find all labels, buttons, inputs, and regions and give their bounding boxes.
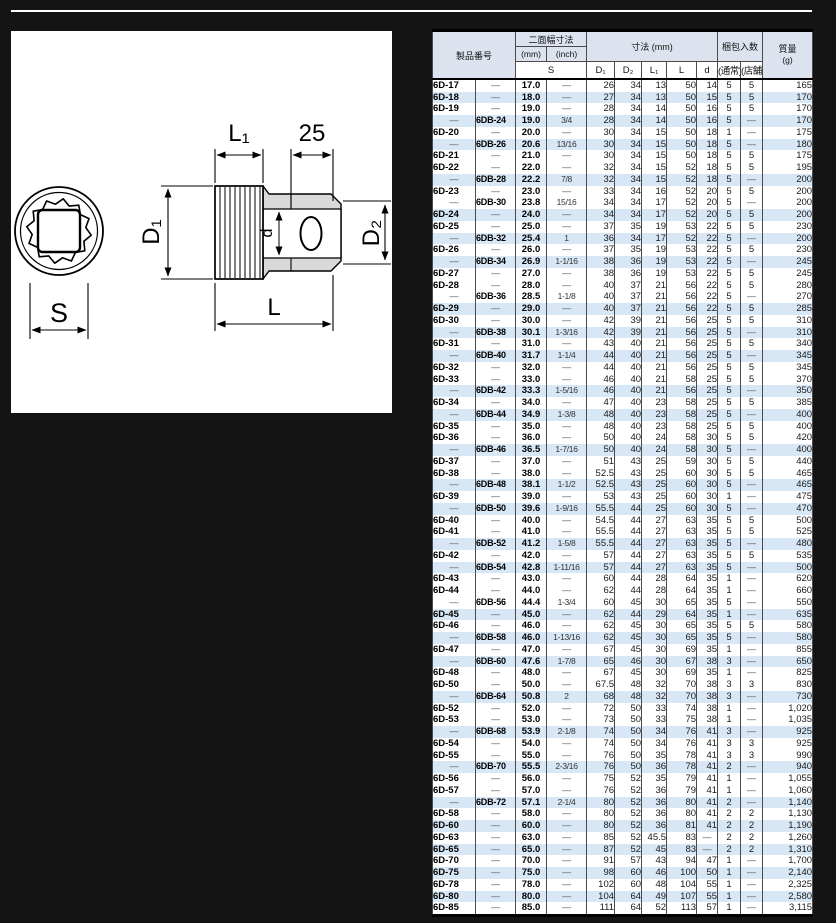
table-cell: 13	[642, 92, 667, 104]
table-cell: 37	[587, 244, 615, 256]
table-cell: 40	[615, 432, 642, 444]
table-cell: 52.5	[587, 479, 615, 491]
table-cell: 75.0	[516, 867, 547, 879]
table-cell: 35	[697, 597, 718, 609]
table-cell: 76	[667, 726, 697, 738]
table-cell: 18	[697, 139, 718, 151]
table-cell: 43	[615, 491, 642, 503]
table-cell: —	[476, 855, 516, 867]
table-cell: 40	[615, 397, 642, 409]
table-cell: —	[476, 867, 516, 879]
table-cell: 40	[615, 374, 642, 386]
dimension-s: S	[30, 283, 88, 339]
table-row: 6D-54—54.0—745034764133925	[433, 738, 813, 750]
table-cell: 5	[718, 221, 741, 233]
table-cell: 5	[718, 209, 741, 221]
table-cell: 41	[697, 820, 718, 832]
table-cell: 52.5	[587, 468, 615, 480]
table-row: 6D-24—24.0—343417522055200	[433, 209, 813, 221]
table-cell: —	[433, 726, 476, 738]
table-cell: 32	[587, 162, 615, 174]
table-cell: 5	[741, 550, 763, 562]
table-cell: 18.0	[516, 92, 547, 104]
table-cell: 3	[741, 679, 763, 691]
table-cell: —	[741, 291, 763, 303]
table-cell: 6D-33	[433, 374, 476, 386]
table-cell: 6DB-44	[476, 409, 516, 421]
table-cell: 35	[697, 667, 718, 679]
table-cell: 6D-46	[433, 620, 476, 632]
table-cell: 48	[587, 421, 615, 433]
table-cell: 40.0	[516, 515, 547, 527]
table-row: 6D-48—48.0—67453069351—825	[433, 667, 813, 679]
table-row: —6DB-6450.8268483270383—730	[433, 691, 813, 703]
table-cell: —	[476, 268, 516, 280]
table-cell: 650	[763, 656, 813, 668]
table-cell: —	[476, 644, 516, 656]
table-cell: 3	[718, 750, 741, 762]
table-cell: 34	[615, 150, 642, 162]
table-cell: 30	[642, 667, 667, 679]
table-cell: 53	[587, 491, 615, 503]
table-cell: 17	[642, 197, 667, 209]
table-cell: 44	[615, 538, 642, 550]
table-cell: —	[547, 221, 587, 233]
table-cell: 15	[642, 174, 667, 186]
table-cell: —	[547, 585, 587, 597]
table-cell: 113	[667, 902, 697, 915]
table-cell: 1	[718, 127, 741, 139]
table-cell: 730	[763, 691, 813, 703]
table-cell: —	[476, 186, 516, 198]
table-cell: 21	[642, 374, 667, 386]
table-cell: 6D-17	[433, 79, 476, 92]
table-cell: 6D-63	[433, 832, 476, 844]
table-cell: 40	[615, 338, 642, 350]
table-cell: 44	[615, 585, 642, 597]
table-cell: 420	[763, 432, 813, 444]
table-cell: —	[741, 350, 763, 362]
table-cell: 620	[763, 573, 813, 585]
table-cell: —	[547, 315, 587, 327]
table-row: 6D-41—41.0—55.54427633555525	[433, 526, 813, 538]
table-cell: 5	[741, 374, 763, 386]
table-cell: 65.0	[516, 844, 547, 856]
table-cell: 35	[697, 573, 718, 585]
table-cell: 34	[642, 726, 667, 738]
table-cell: 80	[587, 808, 615, 820]
table-cell: 24	[642, 432, 667, 444]
table-row: 6D-33—33.0—464021582555370	[433, 374, 813, 386]
table-cell: 48	[615, 691, 642, 703]
table-cell: 6DB-40	[476, 350, 516, 362]
table-cell: 35.0	[516, 421, 547, 433]
table-cell: 6D-37	[433, 456, 476, 468]
table-cell: —	[547, 832, 587, 844]
table-cell: 50	[667, 150, 697, 162]
table-cell: 27	[642, 526, 667, 538]
table-cell: 270	[763, 291, 813, 303]
table-cell: 6D-24	[433, 209, 476, 221]
table-cell: —	[741, 503, 763, 515]
table-cell: —	[547, 844, 587, 856]
table-cell: —	[741, 644, 763, 656]
table-cell: —	[741, 573, 763, 585]
table-cell: 5	[718, 597, 741, 609]
table-cell: —	[433, 409, 476, 421]
table-cell: —	[547, 785, 587, 797]
table-cell: 6D-26	[433, 244, 476, 256]
table-cell: 40	[587, 280, 615, 292]
table-cell: 30	[642, 597, 667, 609]
table-cell: 28	[642, 573, 667, 585]
table-cell: 65	[667, 620, 697, 632]
table-cell: 57	[697, 902, 718, 915]
table-cell: —	[433, 444, 476, 456]
table-cell: —	[547, 456, 587, 468]
table-cell: 535	[763, 550, 813, 562]
table-cell: 230	[763, 244, 813, 256]
table-cell: 635	[763, 609, 813, 621]
table-cell: 1-3/8	[547, 409, 587, 421]
table-cell: 465	[763, 479, 813, 491]
table-cell: 32	[642, 679, 667, 691]
table-cell: —	[741, 609, 763, 621]
table-cell: 42.0	[516, 550, 547, 562]
table-cell: —	[741, 491, 763, 503]
table-cell: 44	[615, 526, 642, 538]
table-cell: 3	[718, 691, 741, 703]
table-cell: 45	[615, 620, 642, 632]
table-cell: 6D-41	[433, 526, 476, 538]
table-cell: 69	[667, 644, 697, 656]
table-cell: 6D-23	[433, 186, 476, 198]
table-cell: 19.0	[516, 115, 547, 127]
table-cell: 60	[615, 879, 642, 891]
table-cell: 74	[587, 738, 615, 750]
table-cell: 22	[697, 291, 718, 303]
table-cell: 56	[667, 327, 697, 339]
table-cell: 475	[763, 491, 813, 503]
table-cell: 52	[667, 162, 697, 174]
table-cell: —	[547, 421, 587, 433]
table-cell: 50	[667, 92, 697, 104]
table-cell: 22	[697, 280, 718, 292]
table-cell: —	[476, 456, 516, 468]
table-cell: 5	[718, 197, 741, 209]
table-cell: —	[433, 174, 476, 186]
table-cell: 990	[763, 750, 813, 762]
table-cell: —	[476, 374, 516, 386]
table-cell: 42	[587, 315, 615, 327]
table-cell: —	[741, 115, 763, 127]
table-cell: 35	[697, 632, 718, 644]
table-cell: 43	[615, 468, 642, 480]
table-cell: 230	[763, 221, 813, 233]
table-cell: —	[741, 327, 763, 339]
table-cell: 62	[587, 609, 615, 621]
table-row: 6D-34—34.0—474023582555385	[433, 397, 813, 409]
table-cell: —	[476, 891, 516, 903]
table-cell: 52	[615, 797, 642, 809]
table-cell: 36	[615, 256, 642, 268]
table-cell: 1-1/4	[547, 350, 587, 362]
table-cell: 6D-44	[433, 585, 476, 597]
table-cell: 5	[718, 397, 741, 409]
table-cell: 5	[718, 456, 741, 468]
table-cell: 50	[615, 761, 642, 773]
table-cell: 111	[587, 902, 615, 915]
table-cell: 52	[667, 197, 697, 209]
table-cell: 6DB-72	[476, 797, 516, 809]
table-cell: 45	[615, 597, 642, 609]
table-cell: —	[476, 738, 516, 750]
table-cell: 41	[697, 726, 718, 738]
table-cell: 34	[615, 92, 642, 104]
table-cell: 31.7	[516, 350, 547, 362]
table-cell: —	[547, 103, 587, 115]
table-cell: 2-1/4	[547, 797, 587, 809]
table-cell: 27	[642, 515, 667, 527]
table-cell: —	[547, 550, 587, 562]
table-cell: —	[476, 808, 516, 820]
table-cell: 45	[615, 667, 642, 679]
table-cell: 5	[741, 468, 763, 480]
table-cell: 5	[741, 280, 763, 292]
table-cell: 400	[763, 421, 813, 433]
table-cell: 855	[763, 644, 813, 656]
table-cell: —	[476, 468, 516, 480]
table-row: 6D-44—44.0—62442864351—660	[433, 585, 813, 597]
table-cell: 65	[667, 597, 697, 609]
table-cell: 480	[763, 538, 813, 550]
table-cell: —	[547, 468, 587, 480]
table-cell: 35	[615, 221, 642, 233]
table-cell: 5	[718, 538, 741, 550]
table-cell: 83	[667, 844, 697, 856]
table-cell: 25.4	[516, 233, 547, 245]
table-cell: 285	[763, 303, 813, 315]
table-row: —6DB-6853.92-1/874503476413—925	[433, 726, 813, 738]
table-cell: 3/4	[547, 115, 587, 127]
table-cell: 5	[741, 92, 763, 104]
table-cell: 45.5	[642, 832, 667, 844]
table-cell: 5	[718, 432, 741, 444]
table-cell: —	[547, 491, 587, 503]
table-cell: —	[476, 585, 516, 597]
table-cell: 3	[718, 726, 741, 738]
table-cell: 25	[697, 385, 718, 397]
table-cell: 37.0	[516, 456, 547, 468]
table-cell: —	[547, 92, 587, 104]
table-cell: 50	[615, 714, 642, 726]
spec-table-body: 6D-17—17.0—2634135014551656D-18—18.0—273…	[433, 79, 813, 916]
table-cell: 43	[615, 479, 642, 491]
table-cell: 25	[697, 421, 718, 433]
table-cell: —	[741, 444, 763, 456]
header-packing-store: (店舗)	[741, 62, 763, 80]
table-cell: —	[547, 186, 587, 198]
table-cell: 55.0	[516, 750, 547, 762]
table-cell: —	[741, 127, 763, 139]
table-cell: 6DB-34	[476, 256, 516, 268]
table-cell: —	[741, 233, 763, 245]
table-cell: 6DB-70	[476, 761, 516, 773]
table-cell: 5	[718, 562, 741, 574]
table-cell: 104	[587, 891, 615, 903]
table-cell: 15	[642, 139, 667, 151]
table-cell: 6D-47	[433, 644, 476, 656]
table-row: 6D-17—17.0—263413501455165	[433, 79, 813, 92]
table-cell: 17	[642, 209, 667, 221]
table-cell: 5	[718, 385, 741, 397]
table-cell: 925	[763, 726, 813, 738]
table-cell: 1-5/16	[547, 385, 587, 397]
socket-front-view	[15, 187, 103, 275]
table-cell: 5	[718, 244, 741, 256]
table-cell: 6DB-36	[476, 291, 516, 303]
table-row: 6D-50—50.0—67.54832703833830	[433, 679, 813, 691]
table-cell: 31.0	[516, 338, 547, 350]
table-cell: —	[476, 703, 516, 715]
table-cell: 1	[718, 585, 741, 597]
table-cell: 63.0	[516, 832, 547, 844]
table-cell: 34	[615, 103, 642, 115]
table-cell: 37	[615, 291, 642, 303]
table-cell: 5	[718, 280, 741, 292]
table-cell: —	[741, 785, 763, 797]
table-cell: 76	[587, 761, 615, 773]
table-cell: 345	[763, 350, 813, 362]
table-cell: 65	[587, 656, 615, 668]
table-row: —6DB-3023.815/1634341752205—200	[433, 197, 813, 209]
table-cell: 28.0	[516, 280, 547, 292]
table-cell: 5	[718, 526, 741, 538]
table-cell: 52	[615, 785, 642, 797]
dimension-d1: D₁	[138, 186, 213, 279]
table-cell: 40	[615, 362, 642, 374]
table-row: —6DB-5846.01-13/1662453065355—580	[433, 632, 813, 644]
table-cell: 1-1/8	[547, 291, 587, 303]
table-cell: —	[476, 714, 516, 726]
table-cell: 5	[718, 620, 741, 632]
table-cell: —	[741, 479, 763, 491]
table-row: —6DB-4031.71-1/444402156255—345	[433, 350, 813, 362]
table-cell: 6DB-54	[476, 562, 516, 574]
table-cell: 5	[718, 303, 741, 315]
table-cell: 940	[763, 761, 813, 773]
table-cell: 2	[718, 844, 741, 856]
table-cell: 2	[741, 808, 763, 820]
table-cell: 170	[763, 92, 813, 104]
table-cell: —	[741, 256, 763, 268]
table-cell: 1,035	[763, 714, 813, 726]
table-cell: —	[433, 256, 476, 268]
table-cell: 245	[763, 268, 813, 280]
table-cell: 5	[718, 79, 741, 92]
table-cell: 6DB-46	[476, 444, 516, 456]
table-cell: 35	[697, 562, 718, 574]
table-row: 6D-19—19.0—283414501655170	[433, 103, 813, 115]
table-cell: 56	[667, 303, 697, 315]
table-cell: 58	[667, 421, 697, 433]
table-cell: 55	[697, 891, 718, 903]
table-cell: 30	[642, 632, 667, 644]
table-cell: —	[741, 761, 763, 773]
table-cell: —	[433, 691, 476, 703]
table-cell: 42.8	[516, 562, 547, 574]
table-cell: 36	[642, 820, 667, 832]
table-cell: 35	[697, 644, 718, 656]
table-cell: 2,140	[763, 867, 813, 879]
header-dim-d2: D₂	[615, 62, 642, 80]
table-cell: 36	[615, 268, 642, 280]
table-cell: 58	[667, 444, 697, 456]
table-row: 6D-22—22.0—323415521855195	[433, 162, 813, 174]
table-cell: 48	[642, 879, 667, 891]
table-row: 6D-46—46.0—624530653555580	[433, 620, 813, 632]
table-cell: 64	[615, 902, 642, 915]
table-cell: —	[476, 750, 516, 762]
table-cell: 44	[615, 503, 642, 515]
table-cell: 20	[697, 209, 718, 221]
table-cell: 75	[667, 714, 697, 726]
table-cell: 5	[718, 479, 741, 491]
table-cell: 5	[741, 315, 763, 327]
table-cell: 200	[763, 186, 813, 198]
table-cell: 170	[763, 115, 813, 127]
table-row: 6D-35—35.0—484023582555400	[433, 421, 813, 433]
table-cell: —	[741, 691, 763, 703]
table-cell: —	[547, 397, 587, 409]
table-cell: 15	[697, 92, 718, 104]
table-cell: —	[741, 632, 763, 644]
table-cell: —	[433, 327, 476, 339]
table-cell: 16	[697, 103, 718, 115]
catalog-page: { "page": { "background_color": "#141414…	[0, 0, 836, 923]
table-row: —6DB-7055.52-3/1676503678412—940	[433, 761, 813, 773]
table-cell: 6D-45	[433, 609, 476, 621]
table-cell: —	[741, 891, 763, 903]
table-cell: 5	[718, 150, 741, 162]
table-cell: 5	[718, 503, 741, 515]
table-cell: 5	[718, 103, 741, 115]
table-cell: 38	[587, 268, 615, 280]
table-cell: 34	[615, 162, 642, 174]
table-cell: 58	[667, 432, 697, 444]
table-cell: —	[547, 620, 587, 632]
table-cell: —	[433, 797, 476, 809]
table-cell: 26.0	[516, 244, 547, 256]
table-cell: 80	[667, 808, 697, 820]
table-cell: 30.1	[516, 327, 547, 339]
table-cell: 46	[615, 656, 642, 668]
table-cell: 38	[697, 703, 718, 715]
table-cell: 47.6	[516, 656, 547, 668]
table-cell: 20.6	[516, 139, 547, 151]
table-cell: 52	[615, 808, 642, 820]
table-cell: 85.0	[516, 902, 547, 915]
table-cell: 550	[763, 597, 813, 609]
table-cell: 18	[697, 174, 718, 186]
table-cell: —	[547, 867, 587, 879]
table-cell: 40	[615, 444, 642, 456]
table-cell: —	[547, 303, 587, 315]
table-cell: 1	[718, 714, 741, 726]
table-cell: —	[741, 714, 763, 726]
table-cell: 80	[587, 820, 615, 832]
table-cell: —	[476, 92, 516, 104]
